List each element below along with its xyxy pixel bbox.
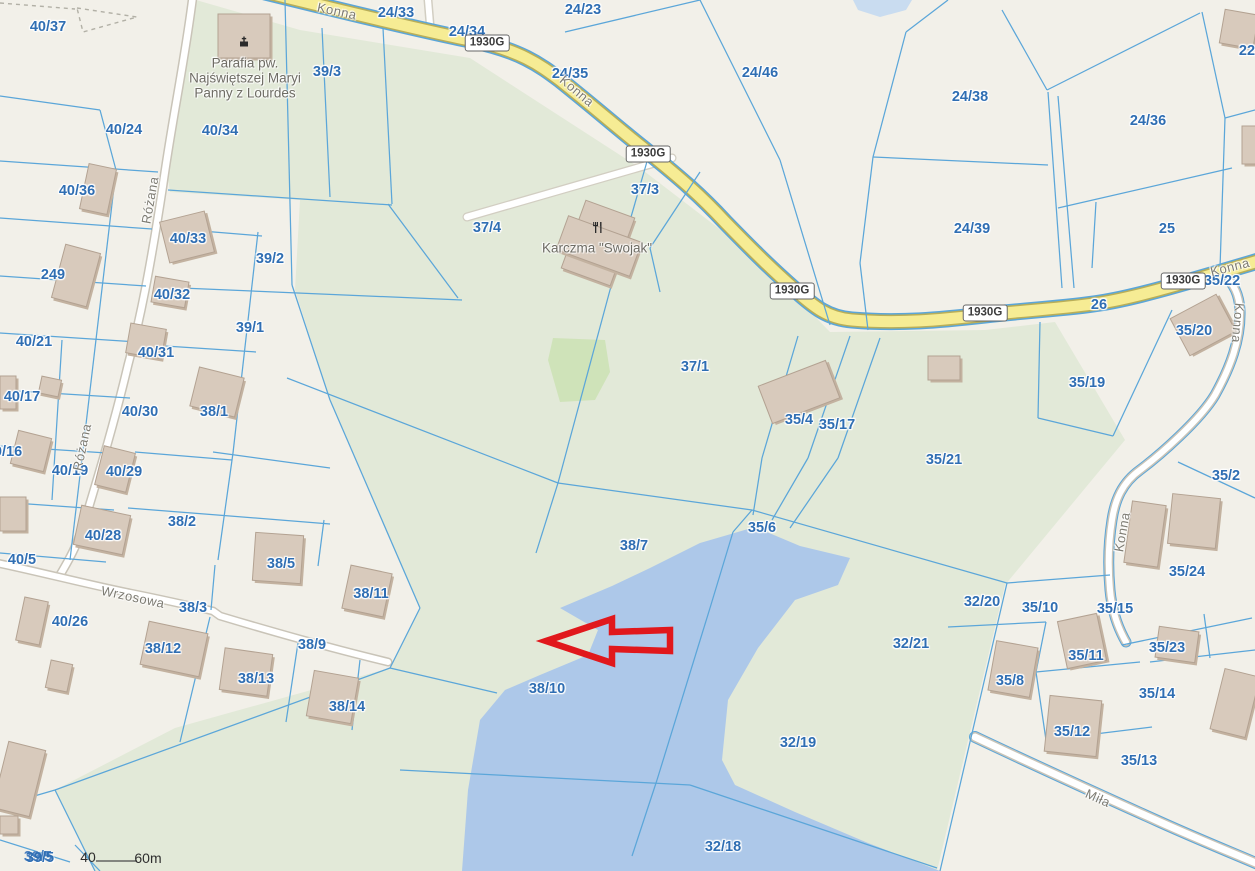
parcel-boundary (1113, 310, 1172, 436)
parcel-boundary (906, 0, 948, 32)
parcel-boundary (218, 453, 233, 560)
building (16, 597, 49, 645)
building (306, 670, 358, 723)
parcel-boundary (0, 553, 106, 562)
parcel-boundary (0, 96, 100, 110)
parcel-boundary (230, 516, 330, 524)
building (928, 356, 960, 380)
building (0, 741, 46, 816)
parcel-boundary (1036, 672, 1046, 740)
parcel-boundary (1092, 202, 1096, 268)
pond (853, 0, 912, 17)
dashed-boundary (77, 8, 137, 32)
building (151, 276, 189, 308)
parcel-boundary (873, 157, 1048, 165)
parcel-boundary (0, 333, 138, 342)
parcel-boundary (1002, 10, 1047, 90)
building (0, 497, 26, 531)
road-mila (975, 737, 1255, 864)
parcel-boundary (0, 840, 70, 862)
building (1044, 695, 1102, 756)
dashed-boundary (0, 3, 75, 9)
building (252, 532, 303, 583)
parcel-boundary (1178, 462, 1255, 498)
parcel-boundary (211, 565, 215, 610)
building (1168, 494, 1221, 549)
map-canvas[interactable]: 40/3724/3324/3424/2324/3524/4624/3824/36… (0, 0, 1255, 871)
parcel-boundary (1007, 575, 1110, 583)
building (0, 376, 16, 409)
building (1170, 294, 1236, 355)
parcel-boundary (1204, 614, 1210, 658)
parcel-boundary (0, 161, 158, 172)
parcel-boundary (0, 218, 152, 229)
basemap-svg (0, 0, 1255, 871)
building (10, 430, 51, 471)
parcel-boundary (233, 232, 258, 453)
parcel-boundary (1058, 168, 1232, 208)
parcel-boundary (0, 390, 130, 398)
building (1219, 9, 1255, 48)
building (51, 244, 100, 306)
building (1155, 626, 1199, 662)
parcel-boundary (318, 520, 324, 566)
meadow-area (55, 668, 500, 871)
building (218, 14, 270, 58)
parcel-boundary (128, 508, 230, 516)
building (1242, 126, 1255, 164)
building (988, 641, 1038, 698)
parcel-boundary (52, 340, 62, 500)
road-stub (428, 0, 430, 24)
building (126, 323, 167, 359)
parcel-boundary (100, 110, 116, 170)
building (38, 376, 61, 397)
building (0, 816, 18, 834)
parcel-boundary (873, 32, 906, 157)
parcel-boundary (1220, 118, 1225, 268)
building (342, 565, 392, 617)
parcel-boundary (1047, 13, 1200, 90)
parcel-boundary (565, 0, 700, 32)
parcel-boundary (1225, 110, 1255, 118)
parcel-boundary (860, 157, 873, 263)
parcel-boundary (700, 0, 780, 160)
building (219, 648, 272, 696)
